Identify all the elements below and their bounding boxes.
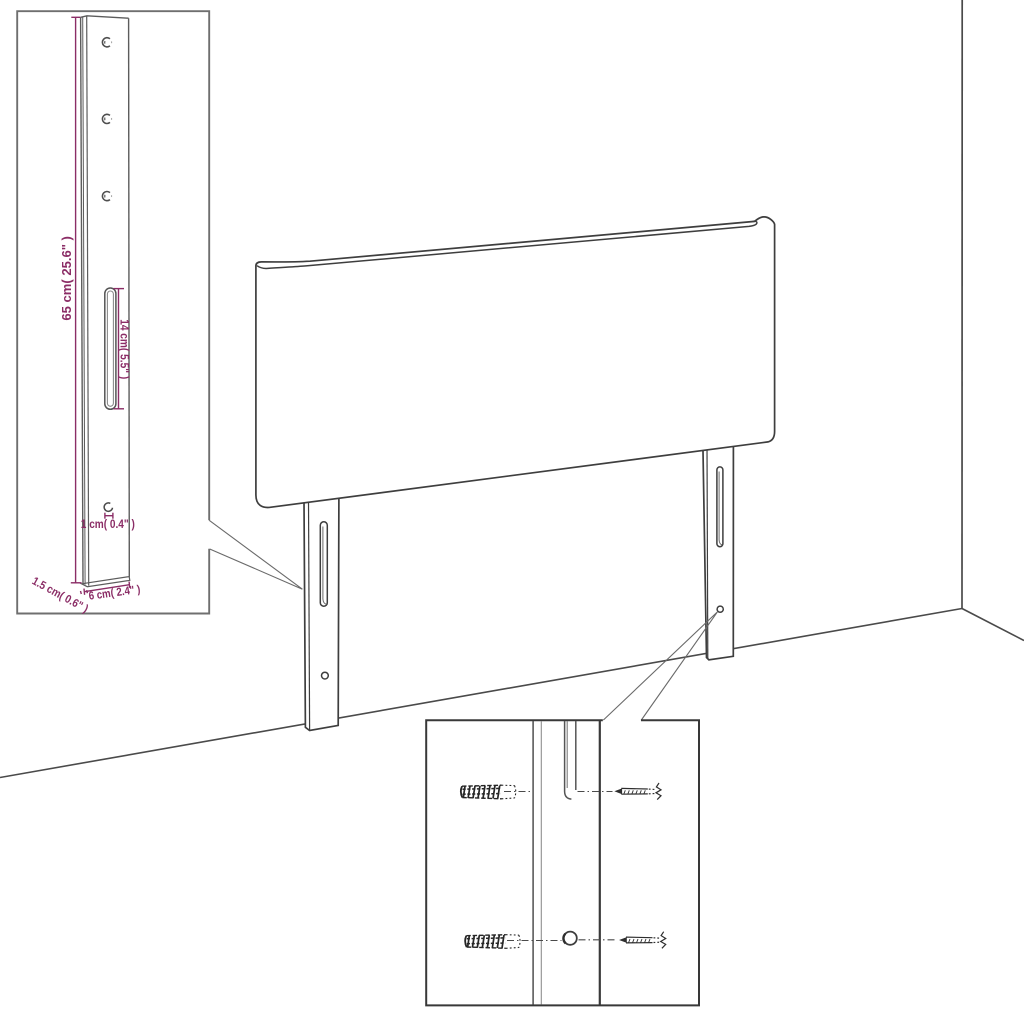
svg-text:65 cm( 25.6" ): 65 cm( 25.6" )	[59, 236, 74, 321]
svg-text:14 cm( 5.5" ): 14 cm( 5.5" )	[117, 319, 131, 379]
svg-text:1 cm( 0.4" ): 1 cm( 0.4" )	[81, 519, 135, 531]
